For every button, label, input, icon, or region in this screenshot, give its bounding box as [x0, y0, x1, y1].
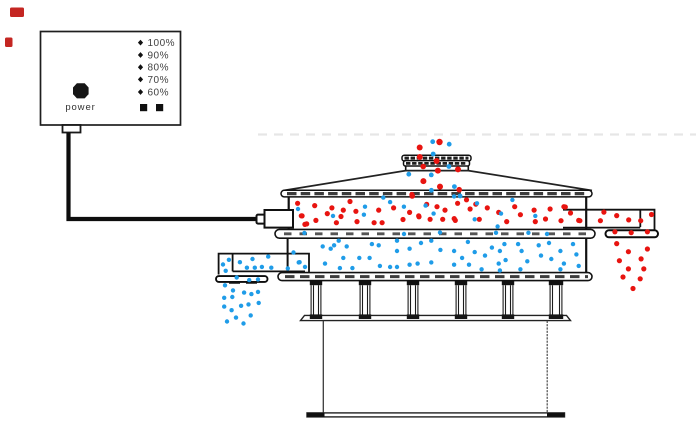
- svg-text:100%: 100%: [148, 38, 176, 49]
- svg-text:70%: 70%: [148, 75, 170, 86]
- svg-text:80%: 80%: [148, 63, 170, 74]
- svg-text:90%: 90%: [148, 50, 170, 61]
- svg-text:power: power: [65, 102, 95, 113]
- svg-text:60%: 60%: [148, 87, 170, 98]
